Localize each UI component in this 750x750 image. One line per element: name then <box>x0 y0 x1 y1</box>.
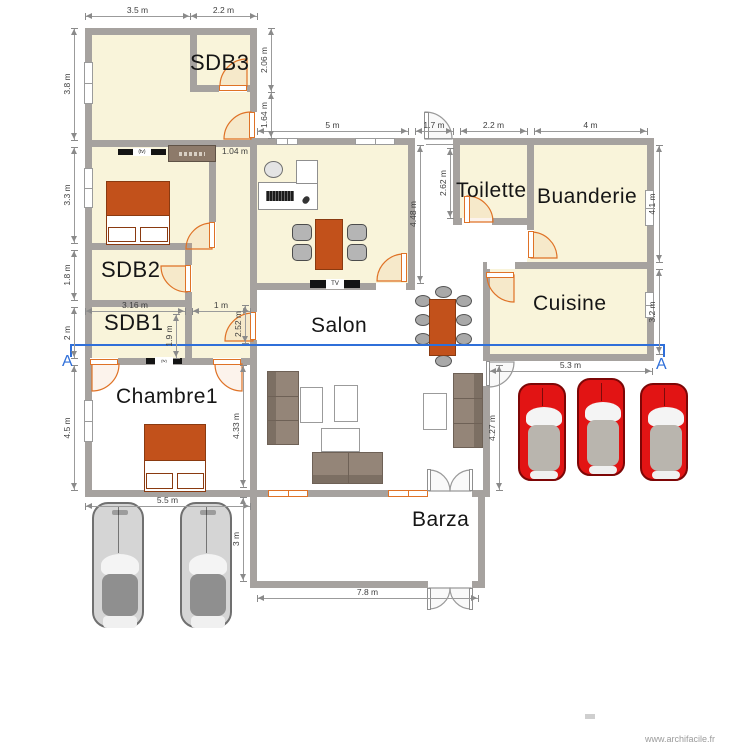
bed-pillow <box>177 473 204 489</box>
wall <box>453 138 654 145</box>
dim-arrow <box>86 308 92 314</box>
car-hood-line <box>542 388 543 406</box>
dim-label[interactable]: 1.7 m <box>423 120 444 130</box>
door-leaf[interactable] <box>185 265 191 292</box>
room-label: SDB3 <box>190 50 249 76</box>
dim-label[interactable]: 4.48 m <box>408 201 418 227</box>
keyboard-icon <box>266 191 294 201</box>
car-roof <box>190 574 226 616</box>
dim-line <box>257 131 408 132</box>
door-arc-icon[interactable] <box>215 364 242 391</box>
dim-tick <box>447 218 454 219</box>
window-divider <box>375 139 376 144</box>
sofa-cushion-line <box>268 420 298 421</box>
dim-arrow <box>416 128 422 134</box>
threshold <box>426 138 453 145</box>
chair[interactable] <box>347 224 367 241</box>
table[interactable] <box>429 299 456 356</box>
dim-tick <box>647 128 648 135</box>
car-windshield <box>585 402 621 422</box>
dim-arrow <box>191 13 197 19</box>
dim-arrow <box>71 308 77 314</box>
dim-arrow <box>258 595 264 601</box>
dim-label[interactable]: 4.1 m <box>647 193 657 214</box>
dim-line <box>85 506 250 507</box>
dim-tick <box>173 358 180 359</box>
dim-arrow <box>173 315 179 321</box>
dim-line <box>243 365 244 487</box>
dim-arrow <box>520 128 526 134</box>
dim-line <box>74 28 75 140</box>
dim-arrow <box>656 270 662 276</box>
coffee-table[interactable] <box>423 393 447 430</box>
dim-tick <box>257 13 258 20</box>
dim-label[interactable]: 4 m <box>583 120 597 130</box>
dim-tick <box>408 128 409 135</box>
car-roof-detail <box>200 510 216 515</box>
door-leaf[interactable] <box>250 312 256 340</box>
dim-tick <box>268 138 275 139</box>
dim-line <box>450 148 451 218</box>
dim-arrow <box>496 483 502 489</box>
coffee-table[interactable] <box>334 385 358 422</box>
dim-arrow <box>258 128 264 134</box>
dim-label[interactable]: 5.5 m <box>157 495 178 505</box>
dim-arrow <box>86 503 92 509</box>
dim-label[interactable]: 5.3 m <box>560 360 581 370</box>
car-red[interactable] <box>577 378 625 476</box>
dim-label[interactable]: 2.62 m <box>438 170 448 196</box>
sofa[interactable] <box>312 452 383 484</box>
sofa-back <box>474 374 482 447</box>
sofa[interactable] <box>267 371 299 445</box>
dim-line <box>659 145 660 262</box>
dim-tick <box>656 262 663 263</box>
door-arc-icon[interactable] <box>429 470 450 491</box>
bed-mattress <box>106 181 170 216</box>
car-hood-line <box>206 507 207 553</box>
dim-tick <box>656 354 663 355</box>
dim-label[interactable]: 2.06 m <box>259 47 269 73</box>
dim-arrow <box>656 347 662 353</box>
dim-arrow <box>417 276 423 282</box>
watermark: www.archifacile.fr <box>645 734 715 744</box>
car-gray[interactable] <box>180 502 232 628</box>
dim-tick <box>242 343 249 344</box>
window-icon[interactable] <box>268 490 308 497</box>
wardrobe-text <box>179 152 205 156</box>
dim-line <box>489 371 652 372</box>
dim-arrow <box>535 128 541 134</box>
dim-label[interactable]: 1 m <box>214 300 228 310</box>
bed-mattress <box>144 424 206 461</box>
dim-tick <box>71 140 78 141</box>
dim-tick <box>652 368 653 375</box>
dim-arrow <box>71 29 77 35</box>
dim-tick <box>527 128 528 135</box>
dim-label[interactable]: 1.64 m <box>259 102 269 128</box>
dim-arrow <box>640 128 646 134</box>
chair[interactable] <box>435 286 452 298</box>
dim-arrow <box>193 308 199 314</box>
dim-arrow <box>240 498 246 504</box>
window-icon[interactable] <box>84 62 93 104</box>
car-rear-window <box>589 466 617 474</box>
dim-tick <box>185 308 186 315</box>
dim-arrow <box>417 146 423 152</box>
door-leaf[interactable] <box>401 253 407 282</box>
coffee-table[interactable] <box>300 387 323 423</box>
room-label: Buanderie <box>537 185 637 209</box>
door-arc-icon[interactable] <box>92 364 119 391</box>
wardrobe[interactable] <box>168 145 216 162</box>
tv-label: (tv) <box>155 357 173 365</box>
car-red[interactable] <box>640 383 688 481</box>
coffee-table[interactable] <box>321 428 360 452</box>
wall <box>250 490 257 588</box>
window-divider <box>85 421 92 422</box>
dim-label[interactable]: 3.16 m <box>122 300 148 310</box>
window-divider <box>85 83 92 84</box>
dim-arrow <box>268 29 274 35</box>
car-roof <box>650 425 682 471</box>
dim-label[interactable]: 7.8 m <box>357 587 378 597</box>
dim-arrow <box>71 148 77 154</box>
dim-line <box>420 145 421 283</box>
dim-arrow <box>471 595 477 601</box>
room-label: Toilette <box>456 179 527 203</box>
door-opening <box>428 581 472 588</box>
chair[interactable] <box>347 244 367 261</box>
door-leaf[interactable] <box>249 112 255 138</box>
dim-label[interactable]: 2.2 m <box>213 5 234 15</box>
desk[interactable] <box>296 160 318 184</box>
dim-label[interactable]: 1.04 m <box>222 146 248 156</box>
door-leaf[interactable] <box>213 359 241 365</box>
dim-label[interactable]: 4.27 m <box>487 415 497 441</box>
tv-label: (tv) <box>133 148 151 156</box>
chair[interactable] <box>456 314 472 326</box>
dim-arrow <box>173 351 179 357</box>
window-icon[interactable] <box>388 490 428 497</box>
door-opening <box>376 283 406 290</box>
door-leaf[interactable] <box>90 359 118 365</box>
car-roof <box>587 420 619 466</box>
dim-arrow <box>71 236 77 242</box>
chair[interactable] <box>456 295 472 307</box>
door-opening <box>487 262 515 269</box>
door-leaf[interactable] <box>469 469 473 491</box>
smudge <box>585 714 595 719</box>
dim-tick <box>250 308 251 315</box>
dim-arrow <box>656 146 662 152</box>
dim-line <box>499 365 500 490</box>
car-hood-line <box>601 383 602 401</box>
table[interactable] <box>315 219 343 270</box>
dim-tick <box>496 490 503 491</box>
dim-arrow <box>240 574 246 580</box>
dim-arrow <box>268 131 274 137</box>
dim-arrow <box>71 293 77 299</box>
dim-line <box>534 131 647 132</box>
dim-label[interactable]: 1.8 m <box>62 264 72 285</box>
bed-pillow <box>140 227 168 242</box>
sofa-back <box>268 372 276 444</box>
dim-tick <box>240 581 247 582</box>
door-opening <box>428 490 472 497</box>
window-divider <box>85 188 92 189</box>
dim-arrow <box>656 255 662 261</box>
dim-arrow <box>268 93 274 99</box>
room-label: Salon <box>311 314 367 338</box>
tv-label: TV <box>326 279 344 289</box>
car-hood-line <box>664 388 665 406</box>
dim-arrow <box>268 85 274 91</box>
dim-tick <box>71 300 78 301</box>
dim-label[interactable]: 3.8 m <box>62 73 72 94</box>
sofa-cushion-line <box>454 423 482 424</box>
door-leaf[interactable] <box>486 272 514 278</box>
window-divider <box>408 491 409 496</box>
dim-line <box>659 269 660 354</box>
room-label: Chambre1 <box>116 385 218 409</box>
dim-label[interactable]: 3.3 m <box>62 184 72 205</box>
car-gray[interactable] <box>92 502 144 628</box>
dim-arrow <box>183 13 189 19</box>
dim-line <box>85 16 190 17</box>
room-label: Barza <box>412 508 469 532</box>
chair[interactable] <box>292 224 312 241</box>
car-rear-window <box>530 471 558 479</box>
dim-label[interactable]: 2 m <box>62 325 72 339</box>
car-rear-window <box>103 616 137 628</box>
dim-line <box>74 147 75 243</box>
window-divider <box>288 491 289 496</box>
window-icon[interactable] <box>276 138 298 145</box>
car-red[interactable] <box>518 383 566 481</box>
dim-line <box>74 365 75 490</box>
car-windshield <box>101 554 139 576</box>
window-icon[interactable] <box>84 400 93 442</box>
door-leaf[interactable] <box>219 85 247 91</box>
dim-label[interactable]: 2.52 m <box>233 311 243 337</box>
dim-arrow <box>645 368 651 374</box>
car-roof <box>528 425 560 471</box>
dim-tick <box>240 487 247 488</box>
section-label: A <box>62 353 73 371</box>
car-rear-window <box>652 471 680 479</box>
car-rear-window <box>191 616 225 628</box>
wall <box>647 138 654 361</box>
sofa-cushion-line <box>454 398 482 399</box>
dim-arrow <box>461 128 467 134</box>
section-label: A <box>656 356 667 374</box>
dim-label[interactable]: 1.9 m <box>164 325 174 346</box>
dim-arrow <box>447 149 453 155</box>
dim-label[interactable]: 2.2 m <box>483 120 504 130</box>
window-icon[interactable] <box>84 168 93 208</box>
window-divider <box>287 139 288 144</box>
sofa-cushion-line <box>268 396 298 397</box>
desk-chair[interactable] <box>264 161 283 178</box>
door-leaf[interactable] <box>528 231 534 258</box>
dim-arrow <box>250 13 256 19</box>
chair[interactable] <box>292 244 312 261</box>
dim-arrow <box>240 480 246 486</box>
section-line <box>71 344 664 346</box>
window-icon[interactable] <box>355 138 395 145</box>
dim-line <box>243 497 244 581</box>
door-leaf[interactable] <box>427 588 431 610</box>
room-label: SDB1 <box>104 310 163 336</box>
dim-arrow <box>496 366 502 372</box>
bed-pillow <box>108 227 136 242</box>
dim-arrow <box>447 211 453 217</box>
dim-line <box>190 16 257 17</box>
dim-tick <box>71 243 78 244</box>
door-leaf[interactable] <box>209 222 215 248</box>
wall <box>250 365 257 497</box>
wall <box>527 138 534 237</box>
car-windshield <box>526 407 562 427</box>
dim-label[interactable]: 3 m <box>231 532 241 546</box>
wall <box>85 28 257 35</box>
sofa-cushion-line <box>348 453 349 483</box>
dim-line <box>460 131 527 132</box>
dim-label[interactable]: 4.33 m <box>231 413 241 439</box>
dim-arrow <box>401 128 407 134</box>
dim-tick <box>250 503 251 510</box>
dim-tick <box>453 128 454 135</box>
car-roof <box>102 574 138 616</box>
car-roof-detail <box>112 510 128 515</box>
dim-line <box>271 28 272 92</box>
dim-label[interactable]: 4.5 m <box>62 417 72 438</box>
dim-label[interactable]: 3.5 m <box>127 5 148 15</box>
dim-arrow <box>71 133 77 139</box>
dim-label[interactable]: 3.2 m <box>647 301 657 322</box>
dim-arrow <box>240 366 246 372</box>
floor-plan-canvas: www.archifacile.fr (tv)(tv)TV3.5 m2.2 m5… <box>0 0 750 750</box>
door-leaf[interactable] <box>427 469 431 491</box>
sofa[interactable] <box>453 373 483 448</box>
dim-tick <box>417 283 424 284</box>
dim-tick <box>478 595 479 602</box>
dim-arrow <box>446 128 452 134</box>
door-arc-icon[interactable] <box>450 470 471 491</box>
room-label: SDB2 <box>101 257 160 283</box>
dim-arrow <box>71 251 77 257</box>
bed-pillow <box>146 473 173 489</box>
dim-label[interactable]: 5 m <box>325 120 339 130</box>
car-hood-line <box>118 507 119 553</box>
chair[interactable] <box>435 355 452 367</box>
dim-tick <box>71 490 78 491</box>
car-windshield <box>648 407 684 427</box>
dim-arrow <box>71 483 77 489</box>
dim-line <box>257 598 478 599</box>
car-windshield <box>189 554 227 576</box>
room-label: Cuisine <box>533 292 607 316</box>
wall <box>478 490 485 588</box>
dim-arrow <box>86 13 92 19</box>
